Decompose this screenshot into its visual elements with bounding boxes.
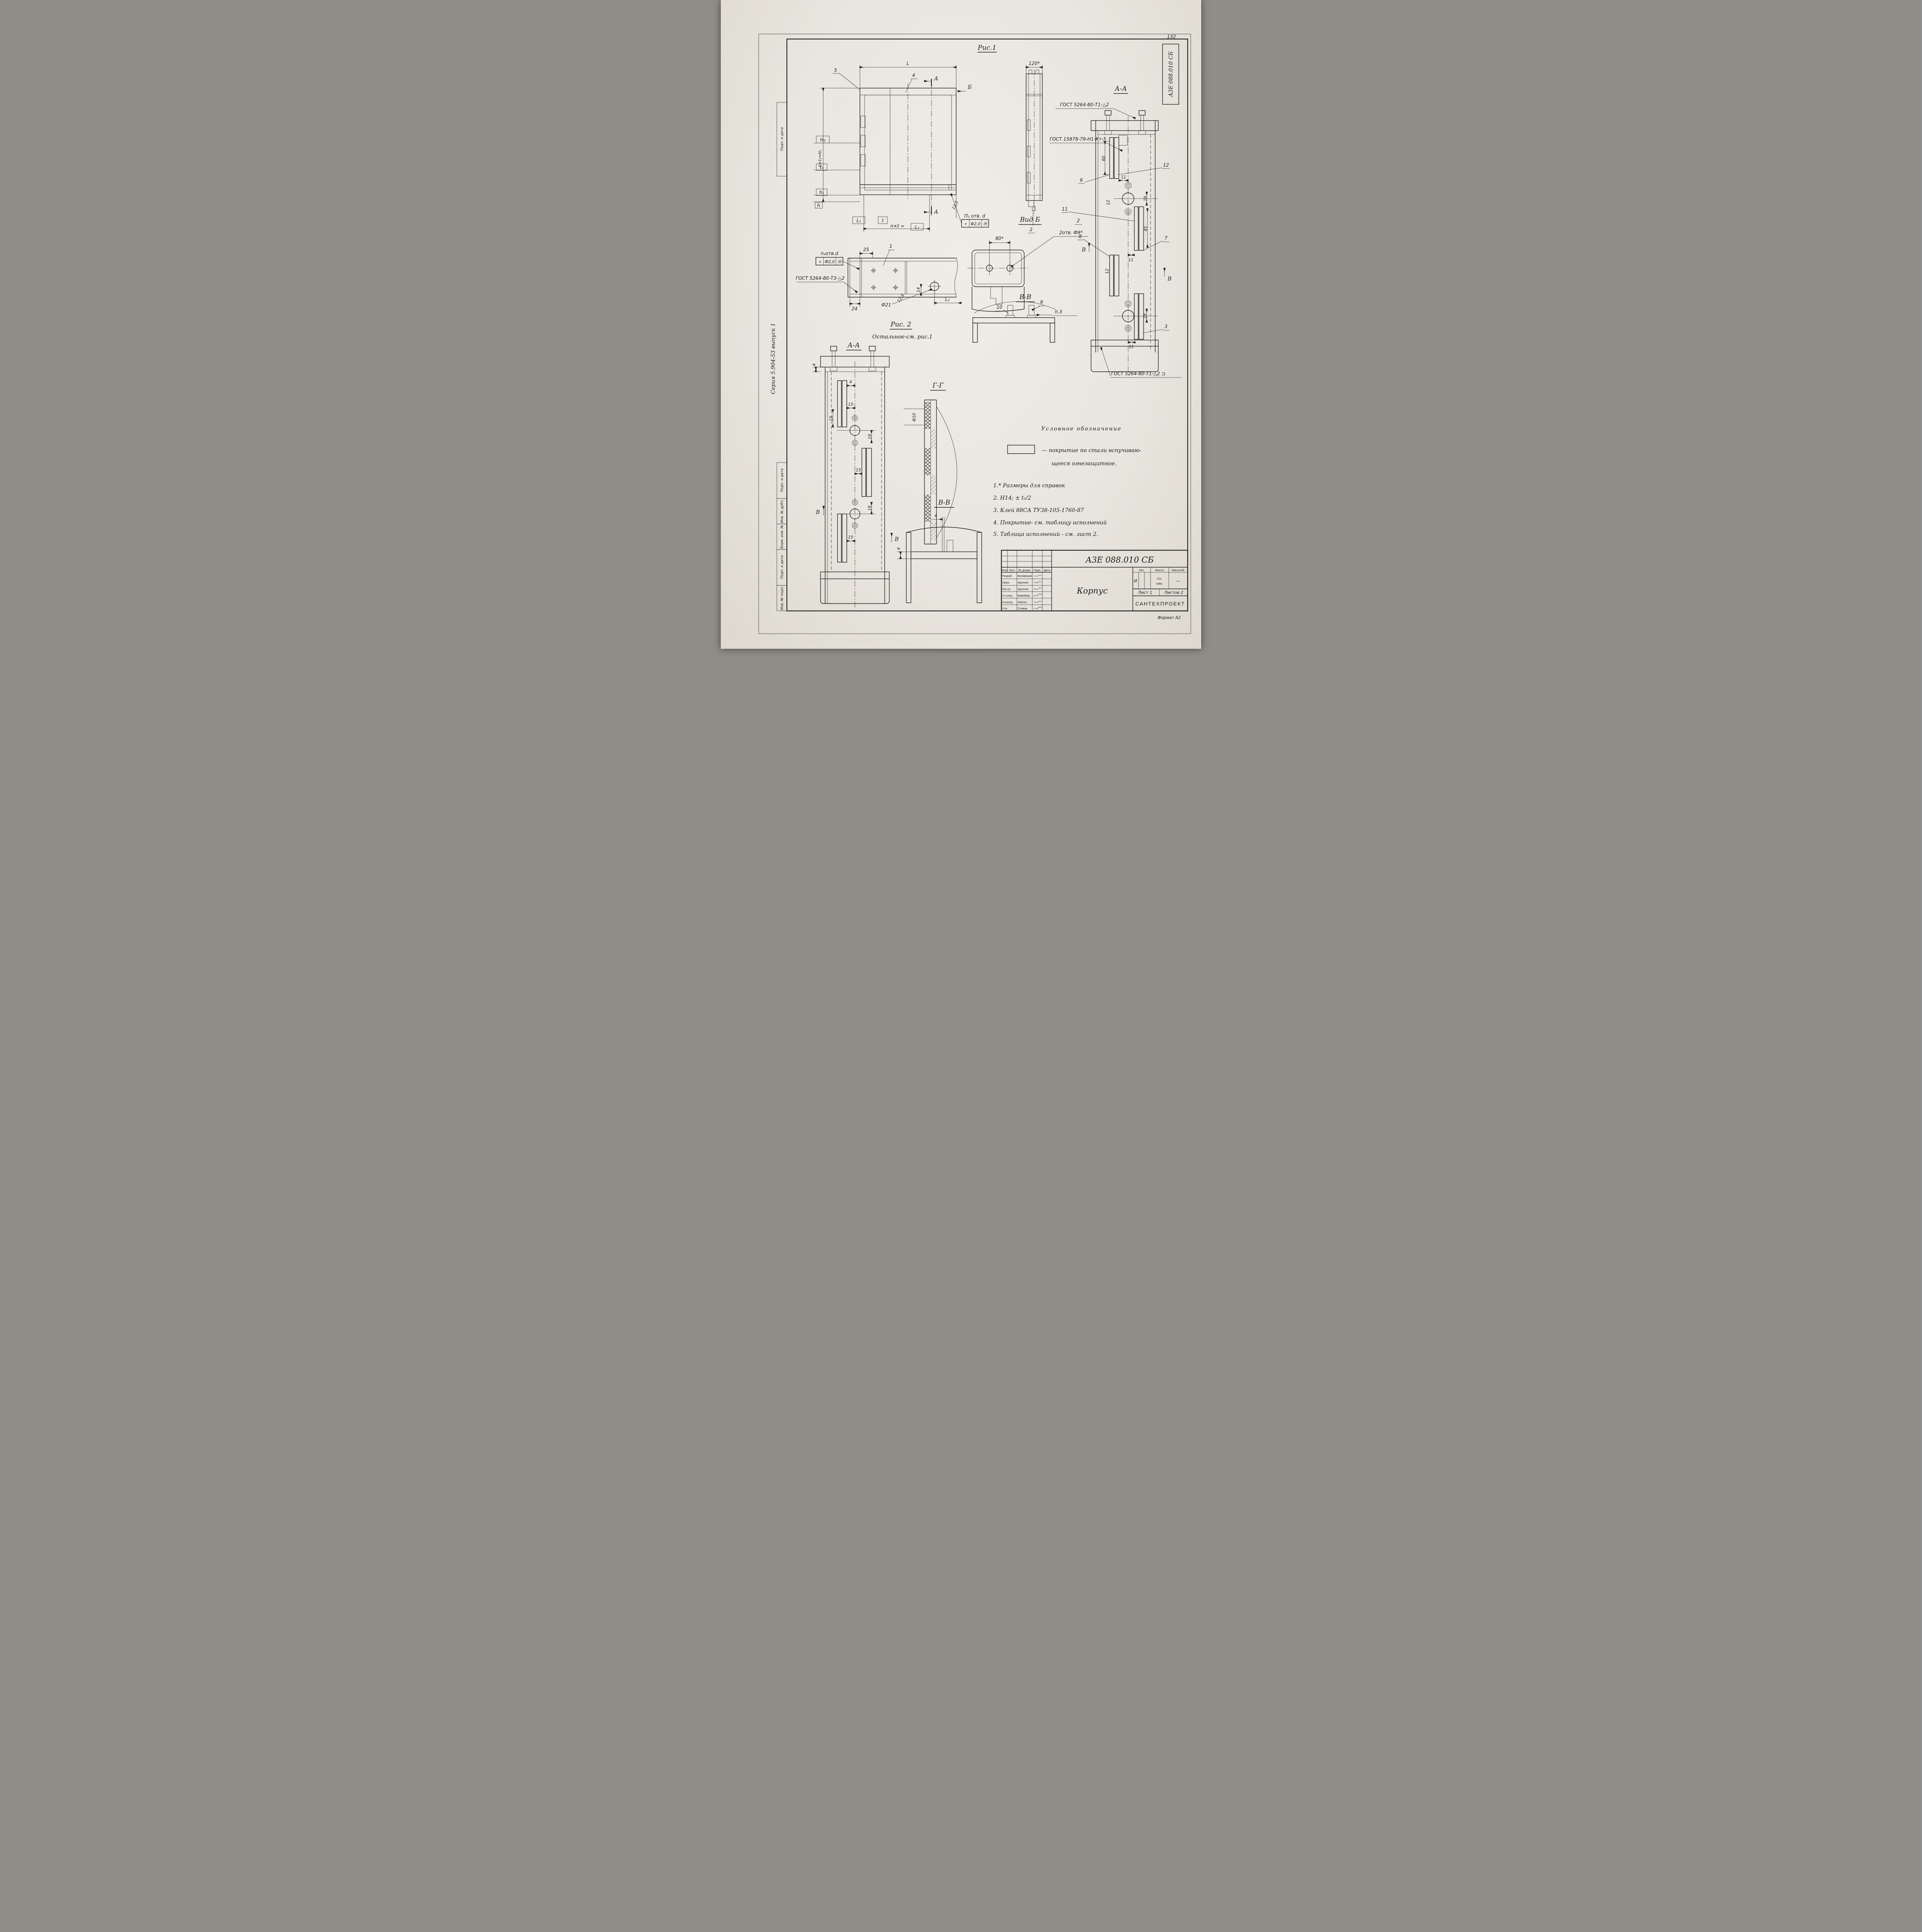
vv-top-note-p3: п.3	[1055, 309, 1062, 315]
view-b-callout-2: 2	[1077, 218, 1080, 223]
row-role-0: Разраб.	[1002, 574, 1013, 578]
section-gg: Г-Г Ф10	[904, 382, 957, 544]
page-number: 132	[1167, 34, 1176, 39]
note-2: 2. H14; ± t₂/2	[993, 495, 1031, 501]
format-note: Формат А2	[1158, 616, 1181, 620]
legend-line1: — покрытие по стали вспучиваю-	[1042, 447, 1141, 454]
aa-right-dim-11a: 11	[1121, 175, 1126, 180]
sheet-label: Лист 1	[1138, 590, 1153, 595]
row-name-2: Крупник	[1018, 587, 1029, 591]
part-name: Корпус	[1076, 586, 1108, 595]
margin-stamp-1: Подп. и дата	[780, 468, 784, 492]
section-vv-top: В-В 10 9 п.3	[973, 293, 1077, 342]
fig2-dim-f21: Ф21	[881, 302, 891, 308]
aa-right-dim-45: 45	[1144, 226, 1148, 231]
col-izm: Изм	[1002, 568, 1007, 572]
fig1-view-b: Б	[967, 84, 972, 90]
aa-right-weld-bottom: ГОСТ 5264-80-Т1-△2 ⊐	[1111, 371, 1165, 376]
row-name-5: Спивак	[1018, 607, 1028, 610]
margin-stamp-4: Подп. и дата	[780, 555, 784, 579]
aa-left-dim-19a: 19	[868, 434, 872, 439]
aa-right-dim-11c: 11	[1129, 345, 1134, 349]
scale-label: Масштаб	[1172, 568, 1184, 572]
sheet-frame: 132 А3Е 088.010 СБ	[759, 34, 1191, 634]
mass-value-2: табл.	[1156, 582, 1163, 585]
mass-label: Масса	[1155, 568, 1164, 572]
aa-right-dim-60: 60	[1101, 156, 1106, 161]
aa-right-callout-3: 3	[1164, 324, 1168, 329]
vv-top-callout-9: 9	[1040, 299, 1043, 305]
fig1-dim-nxt: n×t =	[890, 223, 904, 229]
aa-right-callout-7: 7	[1164, 235, 1168, 241]
fig1-dim-t: t	[882, 218, 884, 223]
aa-left-dim-15d: 15	[848, 535, 853, 540]
col-podp: Подп.	[1033, 568, 1041, 572]
aa-left-title: А-А	[847, 342, 860, 349]
drawing-sheet: 132 А3Е 088.010 СБ Подп. и дата Серия 5.…	[721, 0, 1201, 649]
sheets-label: Листов 2	[1164, 590, 1183, 595]
fig2-callout-1: 1	[889, 243, 892, 249]
note-5: 5. Таблица исполнений - см. лист 2.	[993, 531, 1098, 537]
org-name: САНТЕХПРОЕКТ	[1135, 601, 1185, 607]
fig2-tol-value: Ф2,0	[825, 260, 835, 264]
row-role-2: Рук.гр.	[1002, 587, 1011, 591]
fig2-subtitle: Остальное-см. рис.1	[872, 334, 933, 340]
view-b-dim-80: 80*	[995, 236, 1003, 241]
row-role-5: Утв.	[1002, 607, 1008, 610]
row-name-0: Белявская	[1018, 574, 1032, 578]
signatures	[1033, 575, 1042, 609]
fig2-holes-label: п₂отв.d	[821, 251, 838, 256]
legend-line2: щееся огнезащитное.	[1052, 461, 1117, 467]
fig2-dim-24: 24	[851, 306, 857, 311]
margin-stamp-top: Подп. и дата	[780, 127, 784, 151]
aa-right-callout-6: 6	[1080, 177, 1083, 183]
fig1-tol-modifier: Ⓜ	[983, 222, 988, 226]
view-b-holes-label: 2отв. Ф9*	[1059, 230, 1083, 235]
legend-swatch	[1008, 445, 1035, 454]
aa-right-callout-11: 11	[1062, 206, 1067, 212]
note-3: 3. Клей 88СА ТУ38-105-1760-87	[993, 507, 1084, 514]
fig1-callout-4: 4	[912, 73, 915, 78]
margin-stamp-5: Инв. № подл.	[780, 586, 784, 610]
fig1-dim-L: L	[907, 61, 909, 66]
section-vv-bottom: В-В 4 4	[897, 499, 982, 603]
vv-top-title: В-В	[1019, 293, 1032, 301]
aa-left-sec-v-right: В	[894, 536, 899, 543]
fig1-tol-symbol: ⌖	[964, 222, 967, 226]
lit-label: Лит.	[1139, 568, 1144, 572]
col-doc: № докум.	[1018, 568, 1031, 572]
fig2-weld: ГОСТ 5264-80-Т3-△2	[796, 276, 844, 281]
vv-bottom-dim-4-top: 4	[935, 514, 937, 518]
fig1-section-a-bottom: А	[934, 209, 938, 215]
fig2-dim-L2: L₂	[945, 297, 950, 302]
aa-right-dim-12a: 12	[1106, 200, 1111, 205]
title-block: Изм Лист № докум. Подп. Дата Разраб. Бел…	[1001, 550, 1188, 620]
note-1: 1.* Размеры для справок	[993, 483, 1065, 489]
fig2-tol-modifier: Ⓜ	[838, 260, 842, 264]
weld-callout-gost15878: ГОСТ 15878-79-Н1-Кт-5	[1050, 136, 1106, 142]
aa-right-dim-11b: 11	[1128, 258, 1133, 262]
fig1-dim-H2: H₂	[820, 137, 826, 143]
aa-left-dim-15a: 15	[848, 402, 853, 407]
fig1-dim-h1: h₁	[819, 190, 824, 195]
fig1-section-a-top: А	[934, 76, 938, 82]
fig1-dim-t1: t₁	[820, 165, 824, 170]
notes: 1.* Размеры для справок 2. H14; ± t₂/2 3…	[993, 483, 1107, 537]
fig2-dim-14: 14	[916, 287, 921, 292]
side-callout-2: 2	[1030, 227, 1033, 232]
margin-stamp-3: Взам. инв. №	[780, 525, 784, 548]
fig1-dim-nxt-val: L₁	[915, 224, 919, 230]
aa-left-dim-4: 4	[849, 380, 852, 384]
fig2-dim-25: 25	[863, 247, 869, 252]
fig2-holes	[871, 268, 941, 293]
lit-value: И	[1134, 579, 1137, 583]
aa-right-title: А-А	[1114, 85, 1127, 93]
row-role-4: Н.контр.	[1002, 600, 1013, 604]
fig1-title: Рис.1	[977, 44, 996, 52]
row-name-4: Лейтес	[1018, 600, 1027, 604]
gg-title: Г-Г	[932, 382, 944, 389]
gg-dim-f10: Ф10	[912, 413, 917, 422]
col-list: Лист	[1009, 568, 1016, 572]
fig2-dim-125: 12,5	[896, 293, 905, 303]
fig1-callout-5: 5	[834, 68, 837, 73]
mass-value-1: См.	[1157, 577, 1162, 580]
col-data: Дата	[1044, 568, 1050, 572]
row-role-1: Пров.	[1002, 581, 1010, 584]
vv-bottom-title: В-В	[938, 499, 950, 507]
fig1-main-view: Рис.1 L 5 4 А А Б	[814, 44, 997, 232]
aa-right-callout-12: 12	[1163, 162, 1169, 168]
aa-right-dim-19a: 19	[1143, 196, 1148, 201]
fig2-title: Рис. 2	[890, 321, 911, 328]
fig1-holes-label: П₂ отв. d	[964, 213, 986, 219]
aa-right-sec-v-right: В	[1167, 276, 1171, 282]
aa-left-sec-v-left: В	[815, 509, 820, 515]
weld-callout-gost5264-t1: ГОСТ 5264-80-Т1-△2	[1060, 102, 1109, 107]
vv-bottom-dim-4-left: 4	[897, 548, 901, 550]
view-b-title: Вид Б	[1020, 216, 1040, 224]
fig1-dim-h: h	[817, 203, 820, 208]
legend: Условное обозначение — покрытие по стали…	[1008, 426, 1141, 467]
fig2-view: 25 1 п₂отв.d ⌖ Ф2,0 Ⓜ ГОСТ 5264-80-Т3-△2…	[796, 243, 961, 340]
aa-right-sec-v-left: В	[1081, 247, 1086, 253]
left-margin: Подп. и дата Серия 5.904-53 выпуск 1 Под…	[770, 102, 787, 611]
side-dim-120: 120*	[1029, 61, 1040, 66]
aa-left-dim-4-left: 4	[812, 364, 817, 366]
doc-stamp-vertical: А3Е 088.010 СБ	[1168, 51, 1174, 97]
drawing-canvas: 132 А3Е 088.010 СБ Подп. и дата Серия 5.…	[721, 0, 1201, 649]
row-name-1: Крупник	[1018, 581, 1029, 584]
aa-right-dim-12b: 12	[1105, 269, 1110, 274]
margin-stamp-2: Инв. № дубл.	[780, 499, 784, 523]
fig1-tol-value: Ф2,0	[970, 222, 981, 226]
legend-title: Условное обозначение	[1041, 426, 1122, 432]
section-aa-left: А-А 4 4 15 15 19	[812, 342, 899, 607]
aa-left-dim-19b: 19	[868, 505, 872, 511]
row-role-3: Гл.спец	[1002, 594, 1013, 597]
note-4: 4. Покрытие- см. таблицу исполнений	[993, 520, 1107, 526]
fig2-tol-symbol: ⌖	[819, 260, 821, 264]
fig1-dim-L1: L₁	[856, 218, 861, 223]
scale-value: —	[1176, 579, 1180, 583]
aa-left-dim-15b: 15	[829, 416, 834, 421]
aa-left-dim-15c: 15	[856, 468, 861, 473]
row-name-3: Вайнберг	[1018, 594, 1030, 597]
doc-number: А3Е 088.010 СБ	[1085, 555, 1154, 565]
series-note: Серия 5.904-53 выпуск 1	[770, 323, 776, 394]
vv-top-callout-10: 10	[996, 304, 1003, 310]
